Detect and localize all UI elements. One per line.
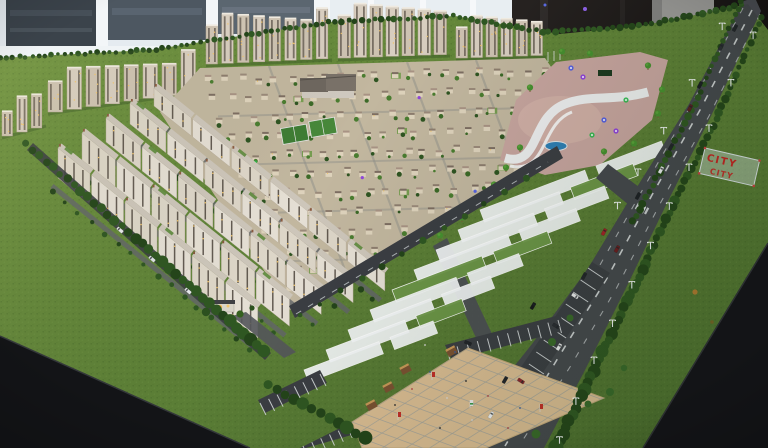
vignette-overlay	[0, 0, 768, 448]
model-photo-scene: CITY CITY	[0, 0, 768, 448]
screenshot-root: CITY CITY	[0, 0, 768, 448]
